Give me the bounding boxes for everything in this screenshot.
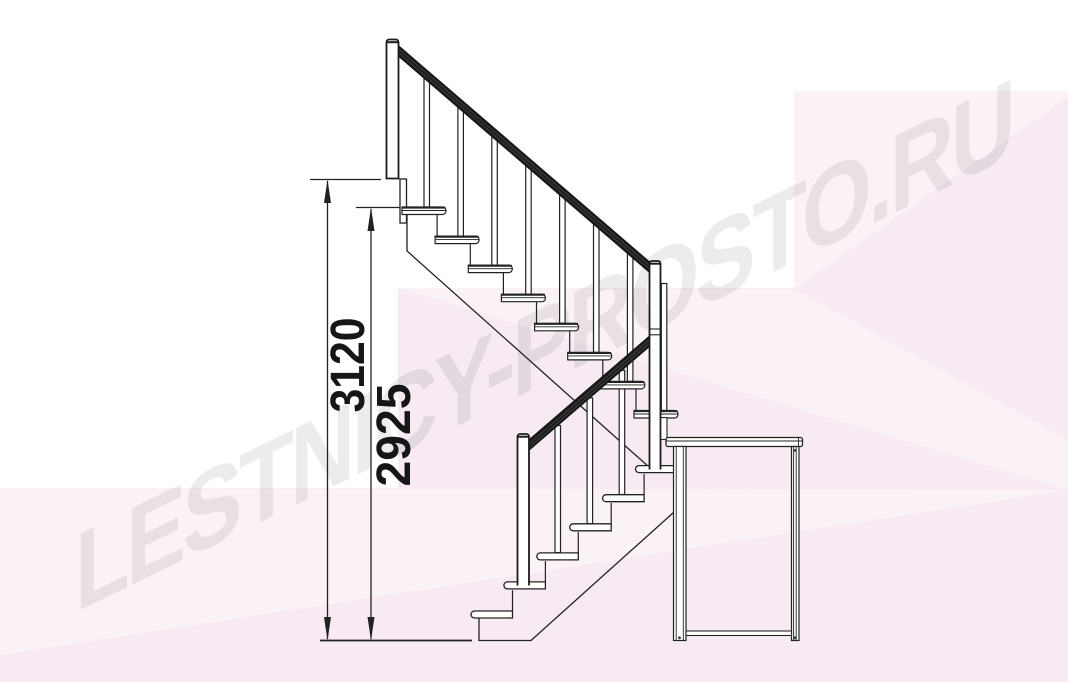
svg-text:2925: 2925 bbox=[368, 384, 421, 487]
